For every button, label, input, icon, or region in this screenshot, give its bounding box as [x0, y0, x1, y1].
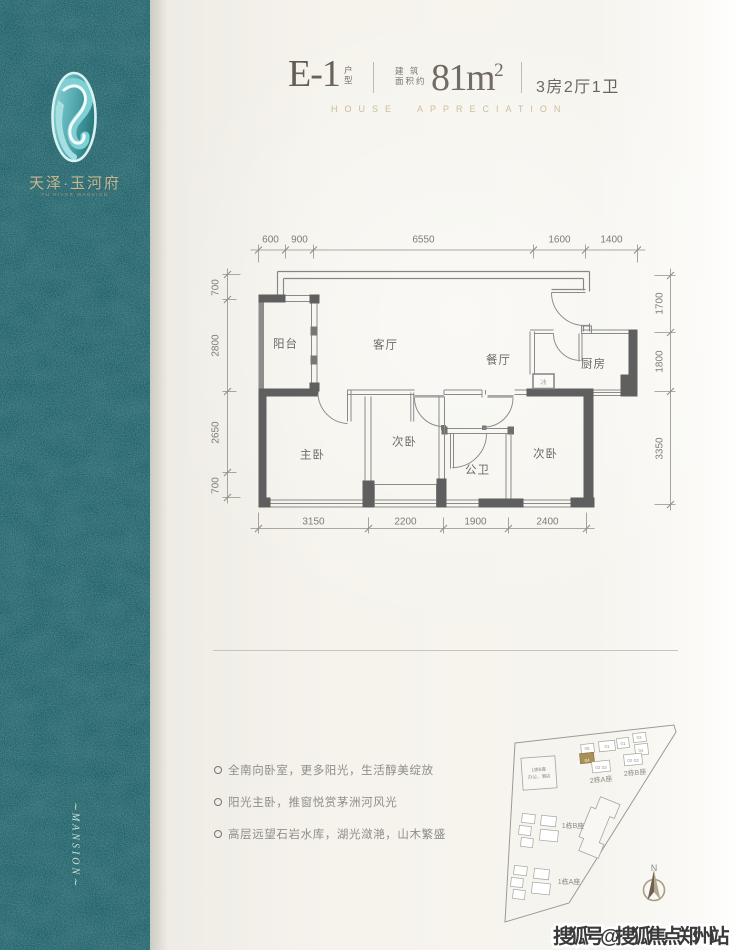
svg-text:04: 04 [638, 748, 644, 753]
svg-text:01: 01 [620, 741, 626, 746]
svg-text:2400: 2400 [536, 517, 559, 528]
svg-text:2650: 2650 [211, 421, 222, 444]
svg-text:6550: 6550 [412, 235, 435, 246]
svg-text:2栋B座: 2栋B座 [623, 767, 646, 778]
svg-text:1600: 1600 [548, 235, 571, 246]
svg-text:600: 600 [262, 235, 279, 246]
svg-text:1900: 1900 [464, 517, 487, 528]
svg-text:客厅: 客厅 [373, 338, 398, 352]
svg-text:1栋A座: 1栋A座 [558, 877, 581, 886]
svg-text:公卫: 公卫 [465, 464, 490, 477]
svg-text:冰: 冰 [540, 378, 547, 387]
svg-text:2栋A座: 2栋A座 [589, 774, 612, 785]
svg-text:1400: 1400 [600, 235, 623, 246]
svg-text:01: 01 [604, 744, 610, 749]
svg-text:厨房: 厨房 [581, 358, 606, 371]
svg-text:700: 700 [211, 279, 222, 296]
svg-text:1栋B座: 1栋B座 [562, 821, 585, 830]
svg-text:3350: 3350 [655, 437, 666, 460]
svg-text:03: 03 [636, 735, 642, 740]
svg-text:餐厅: 餐厅 [486, 353, 511, 367]
svg-text:次卧: 次卧 [392, 435, 417, 449]
svg-text:02 03: 02 03 [595, 765, 607, 770]
svg-text:次卧: 次卧 [533, 447, 558, 461]
svg-text:08: 08 [584, 746, 590, 751]
svg-text:主卧: 主卧 [300, 449, 325, 462]
svg-text:2200: 2200 [394, 517, 417, 528]
svg-text:02 03: 02 03 [627, 758, 639, 763]
svg-text:700: 700 [211, 477, 222, 494]
svg-text:900: 900 [291, 235, 308, 246]
svg-text:1800: 1800 [655, 350, 666, 373]
svg-text:2800: 2800 [211, 334, 222, 357]
svg-text:1700: 1700 [655, 292, 666, 315]
svg-text:阳台: 阳台 [273, 337, 298, 351]
svg-text:3150: 3150 [302, 517, 325, 528]
